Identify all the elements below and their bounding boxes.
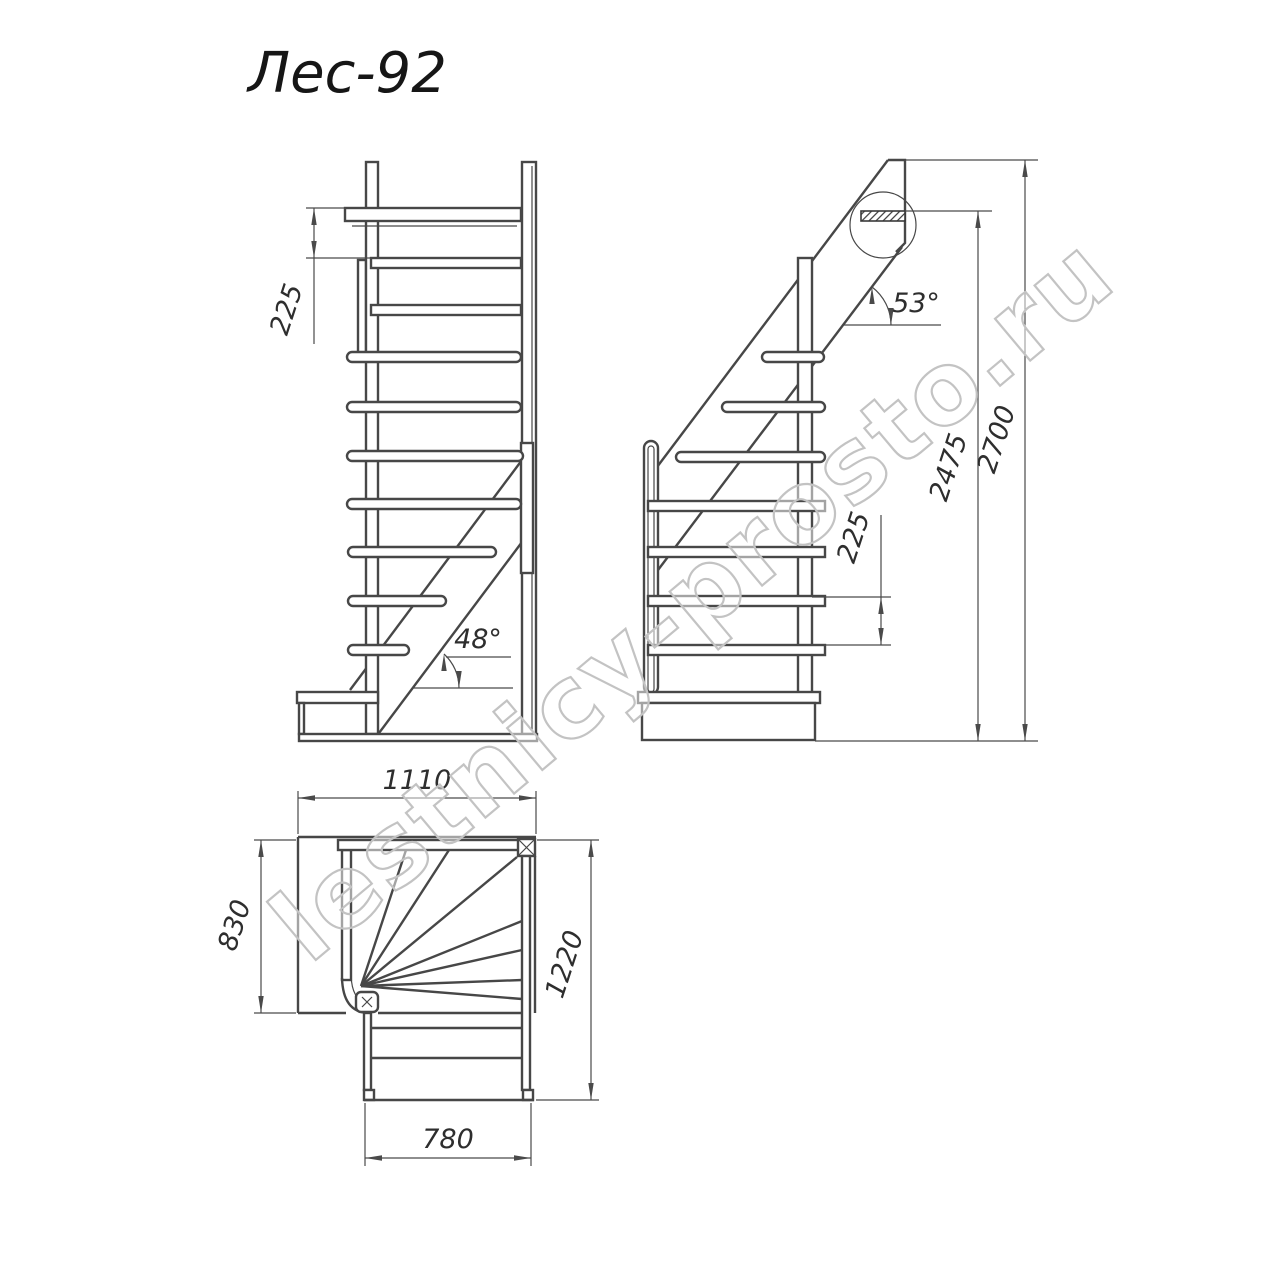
tread-section-hatch [861, 211, 905, 221]
dim-plan-1220: 1220 [536, 840, 599, 1100]
step [348, 547, 496, 557]
stringer-band [358, 260, 366, 357]
dim-label: 830 [212, 896, 257, 955]
dim-plan-780: 780 [365, 1103, 531, 1166]
plan-right-band [522, 856, 530, 1090]
staircase-drawing: Лес-92 [0, 0, 1280, 1280]
angle-label: 48° [454, 624, 502, 655]
arrow-down-icon [1022, 724, 1027, 741]
first-step [297, 692, 378, 703]
step [347, 352, 521, 362]
page-title: Лес-92 [246, 41, 447, 106]
arrow-left-icon [298, 795, 315, 800]
arrow-up-icon [1022, 160, 1027, 177]
step [348, 645, 409, 655]
arrow-down-icon [588, 1083, 593, 1100]
flight-corner-post [364, 1090, 374, 1100]
step [371, 258, 521, 268]
landing-board [521, 443, 533, 573]
step [762, 352, 824, 362]
top-step [345, 208, 521, 221]
arrow-right-icon [514, 1155, 531, 1160]
step [722, 402, 825, 412]
dim-front-angle-48: 48° [413, 624, 513, 688]
arrow-up-icon [878, 597, 883, 614]
arrow-down-icon [258, 996, 263, 1013]
dim-label: 1220 [540, 927, 591, 1002]
arrow-up-icon [311, 208, 316, 225]
arrow-left-icon [365, 1155, 382, 1160]
dim-label: 780 [422, 1124, 474, 1155]
dim-front-riser-225: 225 [264, 208, 371, 344]
flight-left-band [364, 1013, 371, 1090]
step [348, 596, 446, 606]
arrow-down-icon [975, 724, 980, 741]
front-view: 225 48° [264, 162, 537, 741]
stringer-top-cut [888, 160, 905, 252]
step [371, 305, 521, 315]
arrow-down-icon [878, 628, 883, 645]
base-box [642, 703, 815, 740]
arrow-up-icon [975, 211, 980, 228]
dim-label: 225 [264, 280, 309, 339]
step [347, 402, 521, 412]
step [347, 499, 521, 509]
first-step-leg [299, 703, 304, 734]
blueprint-page: Лес-92 [0, 0, 1280, 1280]
arrow-up-icon [258, 840, 263, 857]
angle-label: 53° [892, 288, 940, 319]
arrow-up-icon [588, 840, 593, 857]
arrow-icon [456, 671, 461, 688]
flight-corner-post [523, 1090, 533, 1100]
step [347, 451, 523, 461]
arrow-down-icon [311, 241, 316, 258]
